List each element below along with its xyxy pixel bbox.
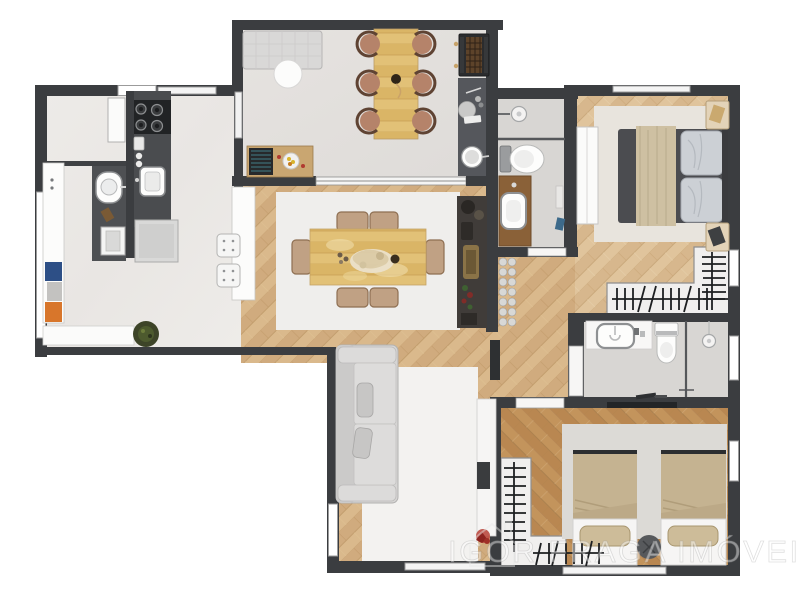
svg-text:IGOR FRAGA IMÓVEIS: IGOR FRAGA IMÓVEIS	[448, 534, 800, 569]
